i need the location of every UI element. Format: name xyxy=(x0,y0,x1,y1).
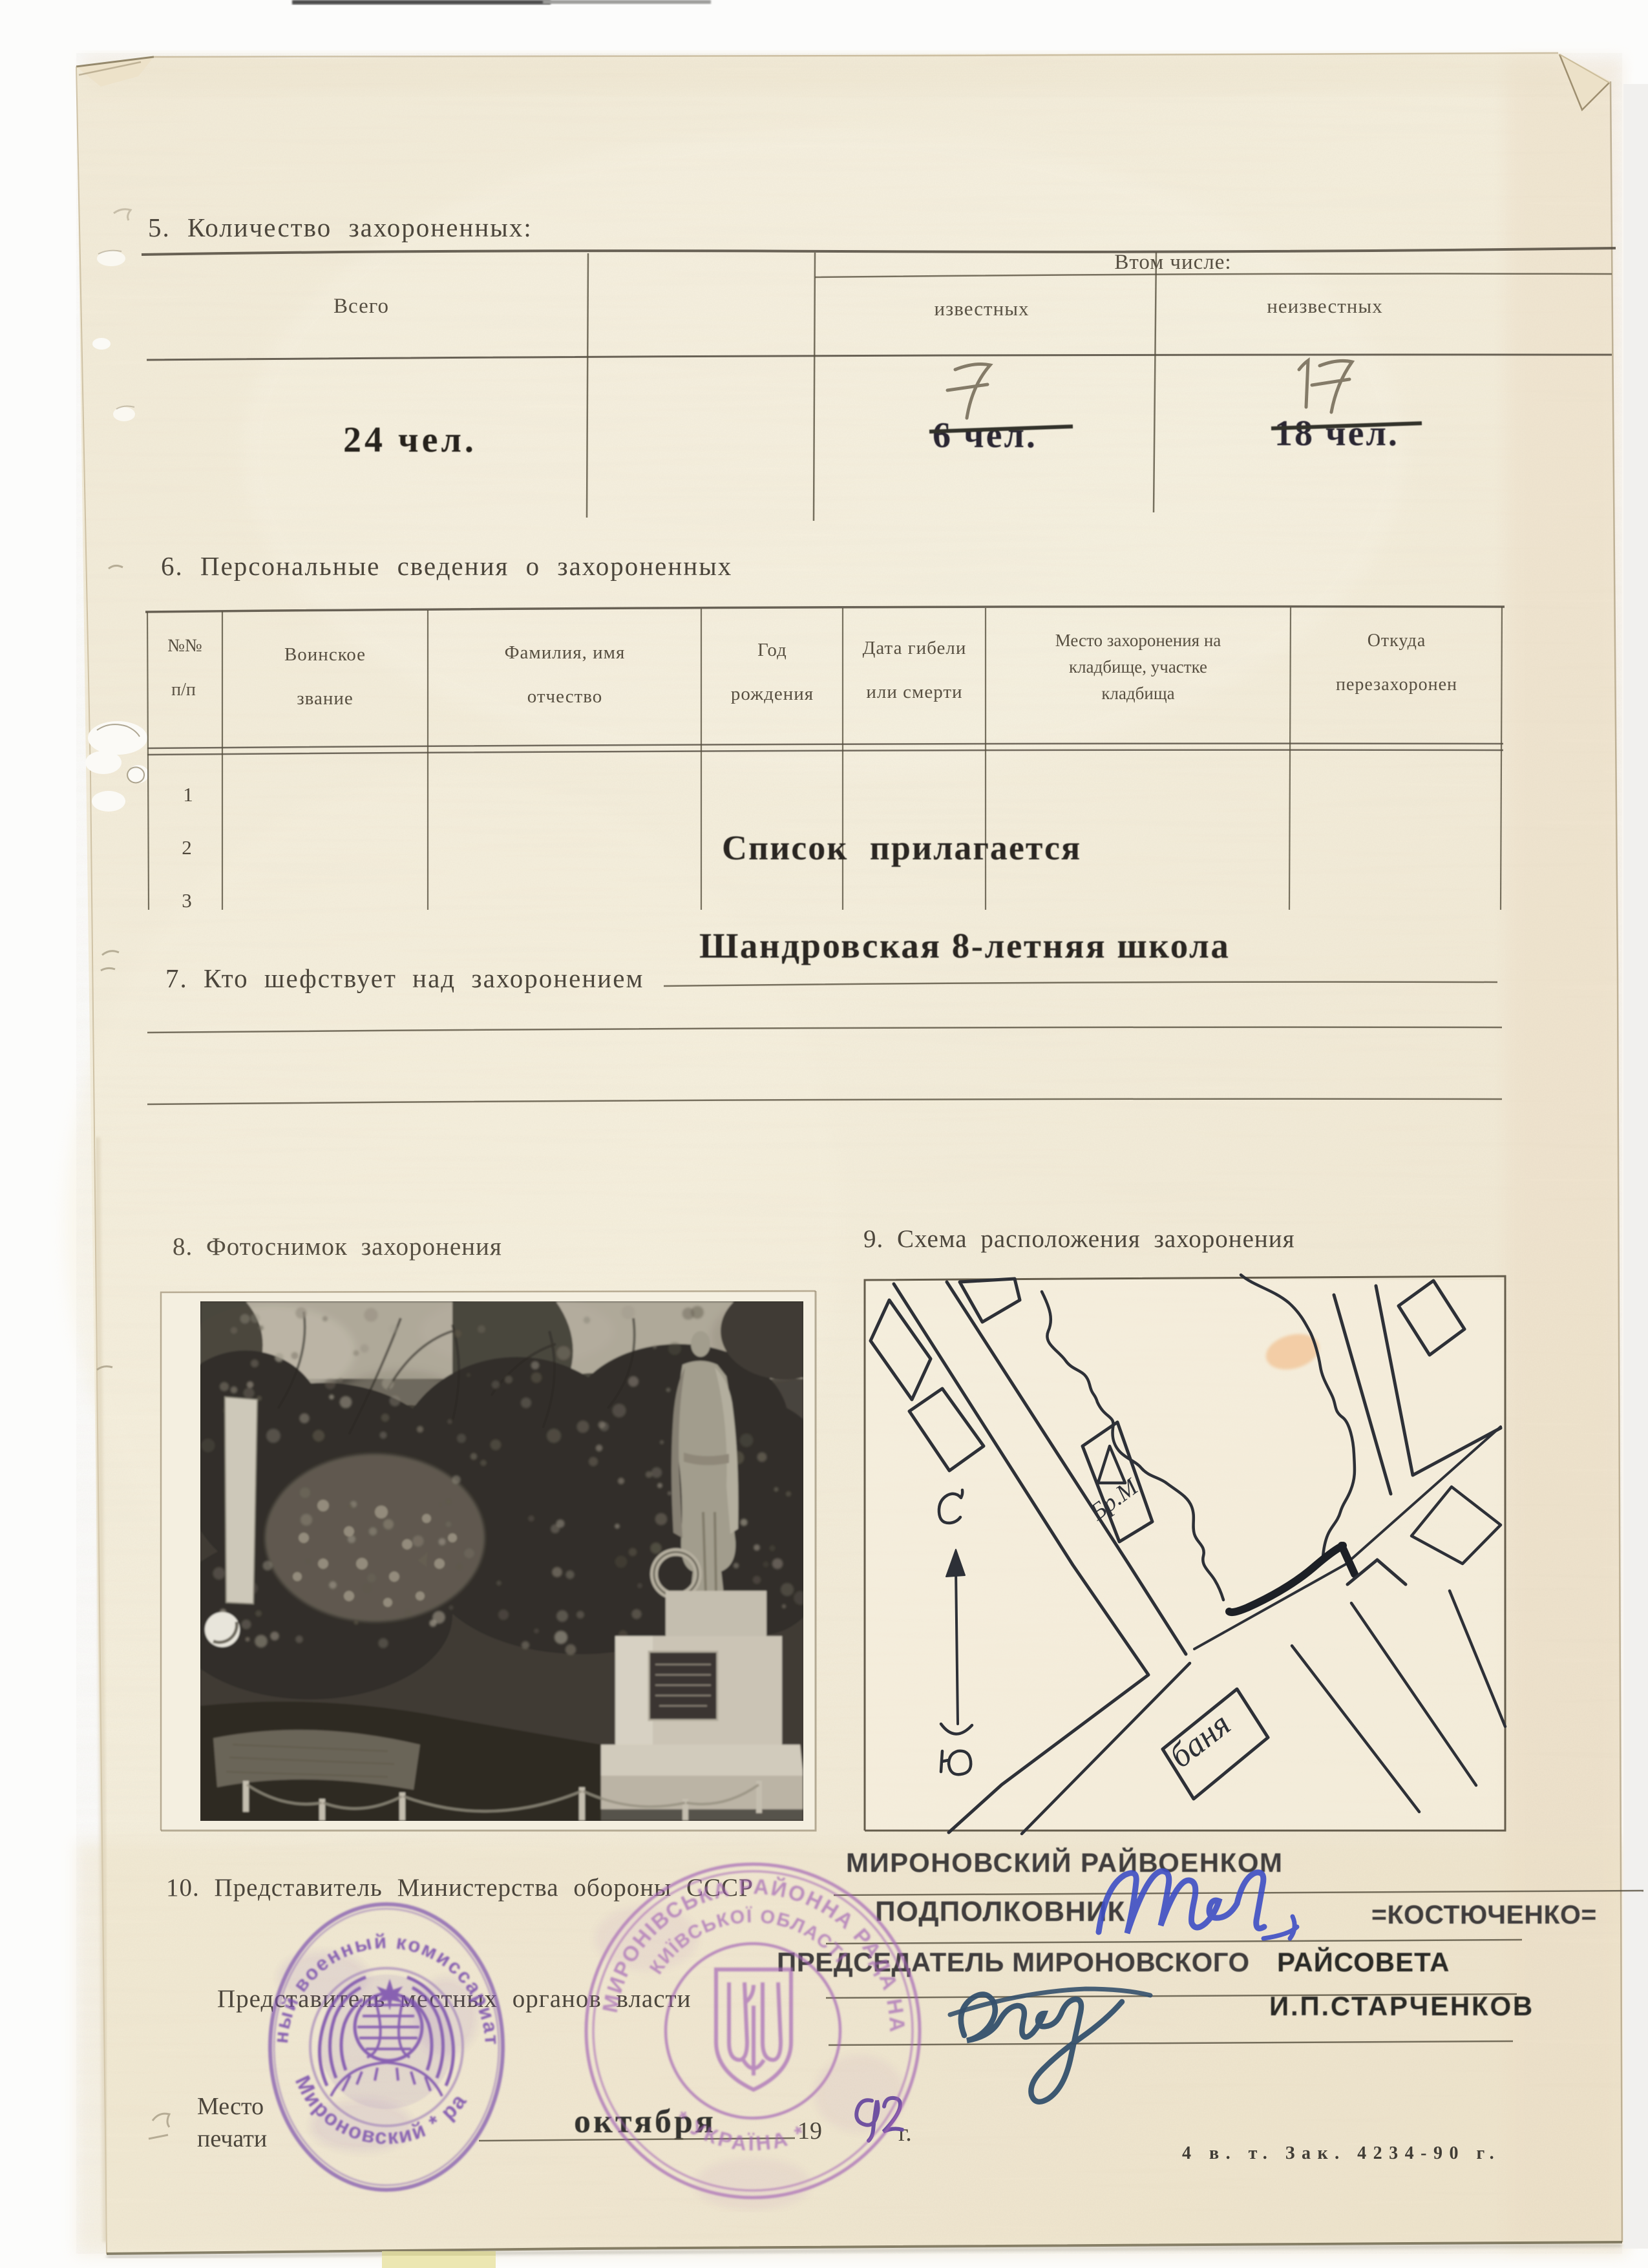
svg-text:Всего: Всего xyxy=(333,295,389,318)
svg-text:МИРОНОВСКИЙ РАЙВОЕНКОМ: МИРОНОВСКИЙ РАЙВОЕНКОМ xyxy=(846,1847,1283,1878)
svg-text:Втом числе:: Втом числе: xyxy=(1114,251,1231,274)
svg-text:Фамилия, имя: Фамилия, имя xyxy=(505,642,626,663)
svg-text:известных: известных xyxy=(934,297,1029,320)
svg-text:9. Схема расположения захороне: 9. Схема расположения захоронения xyxy=(863,1225,1295,1253)
svg-text:перезахоронен: перезахоронен xyxy=(1336,675,1457,695)
svg-text:=КОСТЮЧЕНКО=: =КОСТЮЧЕНКО= xyxy=(1371,1900,1597,1929)
svg-text:п/п: п/п xyxy=(171,680,196,700)
svg-text:г.: г. xyxy=(898,2119,912,2147)
svg-text:8. Фотоснимок захоронения: 8. Фотоснимок захоронения xyxy=(173,1233,502,1261)
svg-text:3: 3 xyxy=(182,889,192,912)
svg-text:рождения: рождения xyxy=(731,684,814,704)
svg-text:Воинское: Воинское xyxy=(284,644,366,665)
svg-text:2: 2 xyxy=(182,836,192,859)
svg-text:ПОДПОЛКОВНИК: ПОДПОЛКОВНИК xyxy=(875,1896,1125,1927)
svg-text:или смерти: или смерти xyxy=(866,682,962,702)
svg-text:звание: звание xyxy=(297,688,354,709)
svg-text:кладбище, участке: кладбище, участке xyxy=(1069,657,1207,677)
svg-text:И.П.СТАРЧЕНКОВ: И.П.СТАРЧЕНКОВ xyxy=(1269,1991,1534,2021)
svg-text:РАЙСОВЕТА: РАЙСОВЕТА xyxy=(1277,1946,1450,1977)
svg-text:Место: Место xyxy=(197,2093,264,2120)
svg-text:1: 1 xyxy=(183,783,193,806)
svg-text:кладбища: кладбища xyxy=(1101,684,1174,703)
svg-text:печати: печати xyxy=(197,2125,267,2152)
svg-text:4 в. т. Зак. 4234-90 г.: 4 в. т. Зак. 4234-90 г. xyxy=(1182,2143,1501,2163)
svg-text:Шандровская 8-летняя школа: Шандровская 8-летняя школа xyxy=(699,926,1230,965)
svg-text:6. Персональные сведения о зах: 6. Персональные сведения о захороненных xyxy=(161,551,732,581)
svg-text:6 чел.: 6 чел. xyxy=(933,415,1037,456)
svg-text:№№: №№ xyxy=(167,636,202,656)
svg-text:5. Количество захороненных:: 5. Количество захороненных: xyxy=(148,213,533,242)
svg-text:отчество: отчество xyxy=(527,686,603,707)
svg-text:7. Кто шефствует над захоронен: 7. Кто шефствует над захоронением xyxy=(165,963,644,993)
svg-text:Дата гибели: Дата гибели xyxy=(863,638,967,658)
svg-text:Место захоронения на: Место захоронения на xyxy=(1055,631,1221,650)
svg-text:Год: Год xyxy=(757,640,787,660)
svg-text:Список прилагается: Список прилагается xyxy=(722,828,1081,867)
svg-text:неизвестных: неизвестных xyxy=(1267,295,1382,317)
svg-text:24 чел.: 24 чел. xyxy=(343,420,477,460)
svg-text:18 чел.: 18 чел. xyxy=(1274,414,1399,454)
svg-text:Откуда: Откуда xyxy=(1368,631,1426,651)
